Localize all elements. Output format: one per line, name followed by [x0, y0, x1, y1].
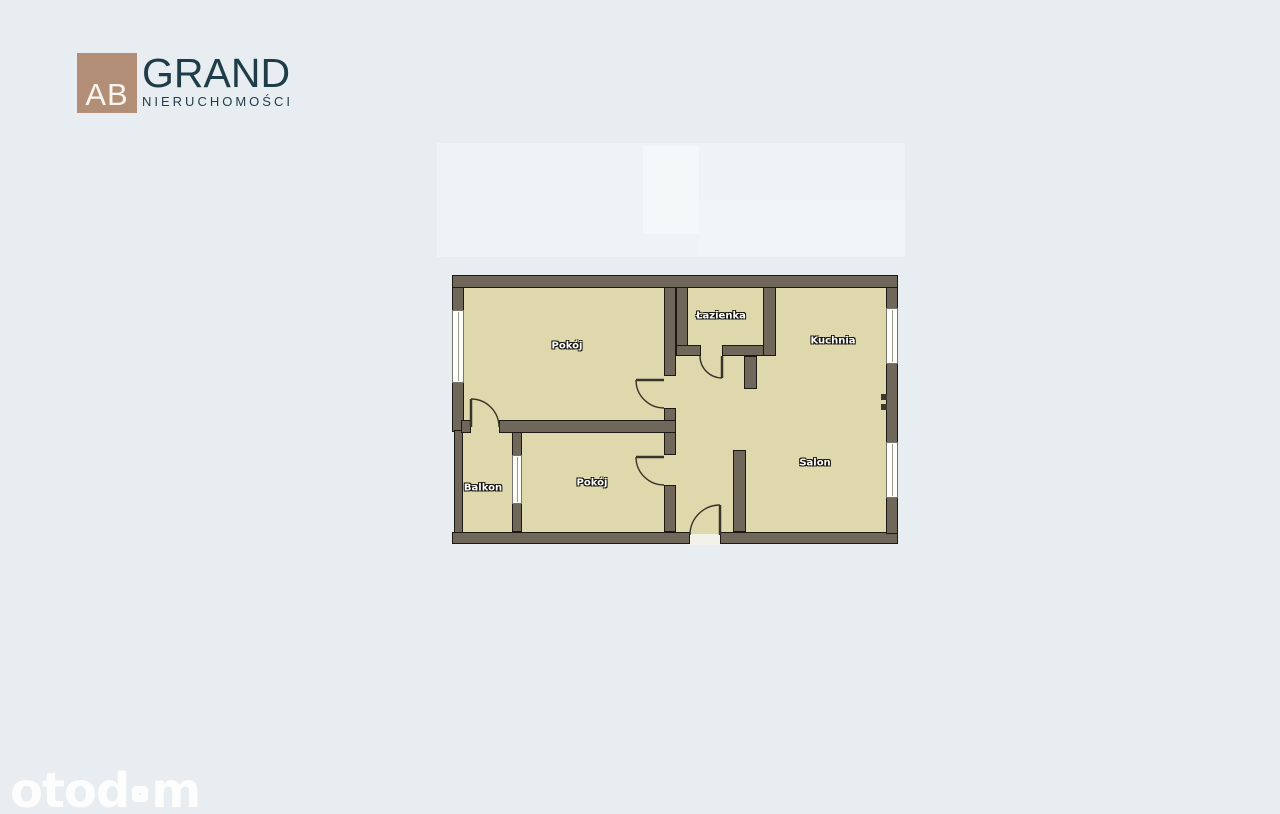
- room-label-balkon: Balkon: [464, 483, 502, 494]
- wall-segment: [744, 356, 757, 389]
- wall-segment: [733, 450, 746, 532]
- photo-remnant: [437, 143, 905, 257]
- wall-segment: [886, 363, 898, 444]
- otodom-text-right: m: [151, 763, 200, 814]
- room-label-kuchnia: Kuchnia: [810, 336, 855, 347]
- wall-segment: [886, 287, 898, 310]
- radiator-mark: [881, 404, 887, 410]
- wall-segment: [452, 287, 464, 312]
- page: AB GRAND NIERUCHOMOŚCI: [0, 0, 1280, 814]
- window: [512, 455, 522, 504]
- otodom-square-glyph: [132, 786, 148, 802]
- wall-segment: [722, 345, 764, 356]
- radiator-mark: [881, 394, 887, 400]
- wall-segment: [499, 420, 676, 433]
- wall-segment: [763, 287, 776, 356]
- logo-text: GRAND NIERUCHOMOŚCI: [142, 53, 293, 113]
- window: [452, 310, 464, 383]
- window: [886, 442, 898, 498]
- wall-segment: [512, 432, 522, 456]
- logo-square: AB: [77, 53, 137, 113]
- wall-segment: [676, 345, 701, 356]
- brand-name: GRAND: [142, 53, 293, 93]
- logo-square-text: AB: [85, 77, 128, 113]
- wall-segment: [461, 420, 471, 433]
- entrance-threshold: [690, 534, 720, 545]
- wall-segment: [720, 532, 898, 544]
- room-label-salon: Salon: [799, 458, 830, 469]
- photo-remnant: [699, 200, 905, 257]
- room-label-pokoj-1: Pokój: [552, 341, 583, 352]
- photo-remnant: [643, 146, 699, 234]
- otodom-text-left: otod: [10, 763, 129, 814]
- room-label-lazienka: Łazienka: [696, 311, 746, 322]
- wall-segment: [664, 485, 676, 532]
- wall-segment: [512, 503, 522, 532]
- otodom-watermark: otodm: [10, 763, 200, 814]
- wall-segment: [452, 532, 690, 544]
- brand-subtitle: NIERUCHOMOŚCI: [142, 94, 293, 109]
- agency-logo: AB GRAND NIERUCHOMOŚCI: [77, 53, 293, 113]
- wall-segment: [886, 497, 898, 534]
- window: [886, 308, 898, 364]
- wall-segment: [454, 430, 463, 536]
- room-label-pokoj-2: Pokój: [577, 478, 608, 489]
- wall-segment: [676, 287, 688, 346]
- wall-segment: [664, 287, 676, 376]
